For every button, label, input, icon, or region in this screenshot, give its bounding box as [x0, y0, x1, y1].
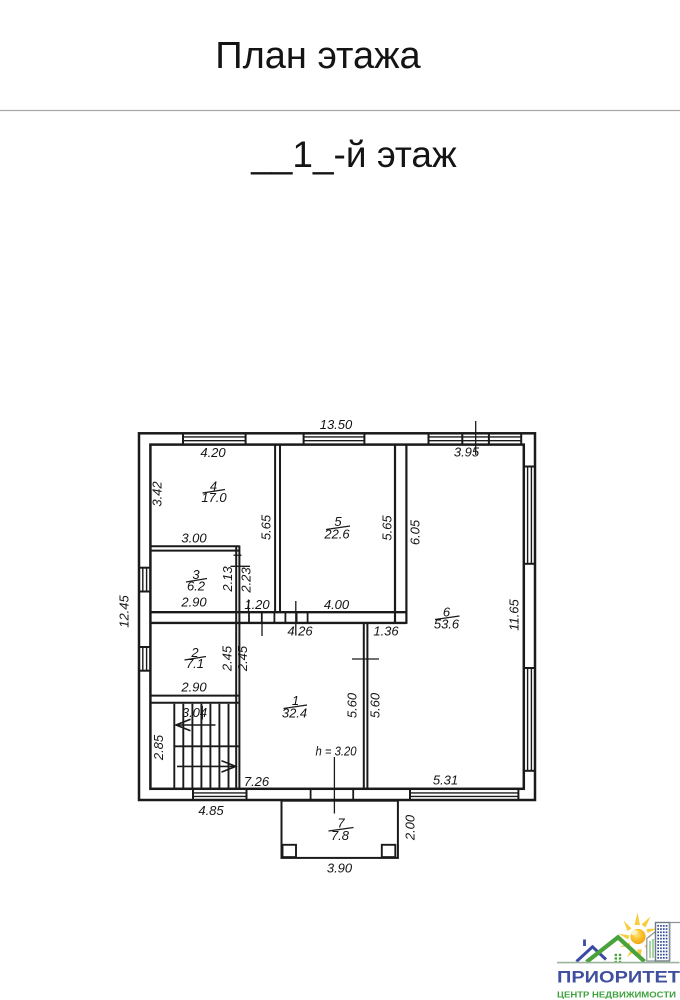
svg-text:3.90: 3.90 [327, 861, 353, 876]
svg-text:22.6: 22.6 [323, 527, 350, 542]
svg-text:5.60: 5.60 [345, 692, 360, 718]
svg-text:5.65: 5.65 [380, 515, 395, 541]
svg-text:3.42: 3.42 [150, 481, 165, 507]
svg-text:2.45: 2.45 [235, 645, 250, 672]
svg-text:11.65: 11.65 [507, 598, 522, 630]
svg-text:4.20: 4.20 [200, 445, 226, 460]
svg-text:4.00: 4.00 [324, 597, 350, 612]
svg-text:2.00: 2.00 [403, 814, 418, 841]
svg-text:1.36: 1.36 [373, 624, 399, 639]
svg-text:53.6: 53.6 [434, 617, 460, 632]
svg-text:6.05: 6.05 [408, 519, 423, 545]
svg-text:7.26: 7.26 [244, 774, 270, 789]
svg-text:3.95: 3.95 [454, 445, 480, 460]
svg-text:2.85: 2.85 [151, 734, 166, 761]
svg-text:7.8: 7.8 [331, 828, 350, 843]
svg-text:17.0: 17.0 [201, 490, 227, 505]
svg-text:4.85: 4.85 [198, 803, 224, 818]
svg-text:2.23: 2.23 [239, 567, 254, 594]
svg-text:5.31: 5.31 [433, 773, 458, 788]
svg-text:2.90: 2.90 [180, 595, 207, 610]
svg-text:2.13: 2.13 [220, 566, 235, 593]
svg-text:32.4: 32.4 [282, 706, 307, 721]
svg-text:1.20: 1.20 [244, 597, 270, 612]
svg-text:12.45: 12.45 [117, 594, 132, 627]
svg-text:ПРИОРИТЕТ: ПРИОРИТЕТ [557, 968, 680, 987]
svg-text:2.45: 2.45 [220, 645, 235, 672]
svg-text:4.26: 4.26 [287, 624, 313, 639]
svg-text:7.1: 7.1 [186, 656, 204, 671]
svg-text:3.04: 3.04 [182, 705, 207, 720]
svg-text:__1_-й этаж: __1_-й этаж [250, 134, 457, 175]
svg-text:3.00: 3.00 [181, 531, 207, 546]
svg-text:План этажа: План этажа [215, 35, 421, 77]
svg-text:5.65: 5.65 [259, 514, 274, 540]
svg-text:ЦЕНТР НЕДВИЖИМОСТИ: ЦЕНТР НЕДВИЖИМОСТИ [557, 990, 676, 1000]
svg-text:5.60: 5.60 [368, 692, 383, 718]
svg-text:2.90: 2.90 [180, 680, 207, 695]
svg-text:13.50: 13.50 [320, 417, 353, 432]
svg-text:h = 3.20: h = 3.20 [316, 744, 358, 759]
svg-text:6.2: 6.2 [187, 579, 206, 594]
